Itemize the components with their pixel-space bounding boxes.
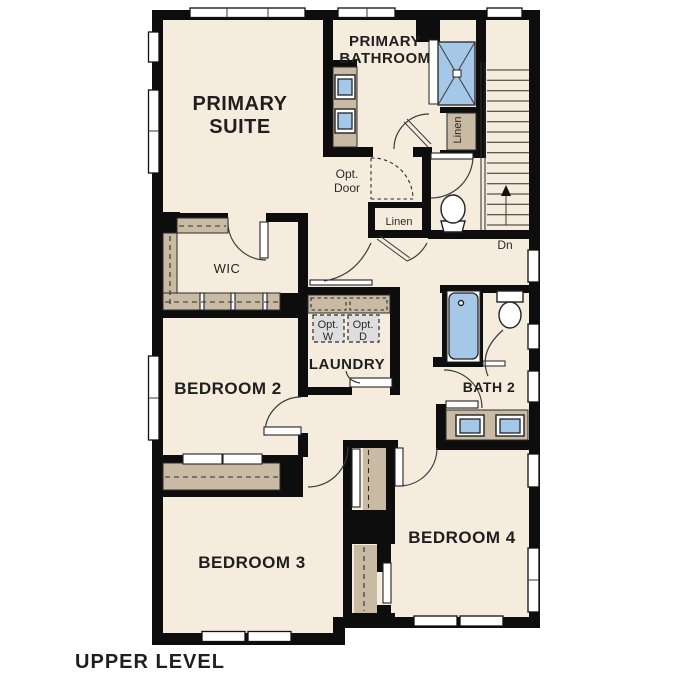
- stairs-down-label: Dn: [497, 238, 512, 252]
- half-wall: [483, 361, 505, 366]
- wic-label: WIC: [214, 261, 241, 276]
- window: [414, 616, 457, 626]
- page-title: UPPER LEVEL: [75, 651, 225, 673]
- window: [528, 454, 539, 487]
- laundry-label: LAUNDRY: [309, 356, 385, 373]
- opt-dryer-label: Opt.: [353, 319, 374, 331]
- window: [460, 616, 503, 626]
- bath2-label: BATH 2: [463, 379, 516, 395]
- primary-suite-label: PRIMARY: [193, 93, 288, 115]
- opt-washer-label: Opt.: [318, 319, 339, 331]
- window: [248, 632, 291, 642]
- bathtub: [447, 291, 480, 362]
- primary-suite-label: SUITE: [209, 116, 270, 138]
- opt-door-label: Door: [334, 181, 360, 195]
- floor-plan-page: PRIMARY SUITE PRIMARY BATHROOM WIC LAUND…: [0, 0, 687, 687]
- bedroom3-label: BEDROOM 3: [198, 553, 305, 572]
- bedroom4-label: BEDROOM 4: [408, 528, 516, 547]
- bedroom4-closet: [352, 448, 386, 510]
- primary-bathroom-label: PRIMARY: [349, 33, 421, 50]
- window: [149, 32, 160, 62]
- window: [528, 324, 539, 349]
- floor-plan-drawing: PRIMARY SUITE PRIMARY BATHROOM WIC LAUND…: [0, 0, 687, 687]
- opt-door-label: Opt.: [336, 167, 359, 181]
- primary-vanity: [330, 60, 357, 147]
- window: [487, 8, 522, 18]
- toilet: [441, 195, 465, 232]
- window: [202, 632, 245, 642]
- primary-bathroom-label: BATHROOM: [339, 50, 430, 67]
- window: [528, 250, 539, 282]
- linen-hall-label: Linen: [386, 216, 413, 228]
- window: [528, 371, 539, 402]
- toilet: [497, 291, 523, 328]
- opt-washer-label: W: [323, 331, 334, 343]
- bedroom2-label: BEDROOM 2: [174, 379, 281, 398]
- opt-dryer-label: D: [359, 331, 367, 343]
- window: [190, 8, 305, 18]
- bath2-vanity: [446, 410, 528, 440]
- linen-upper-label: Linen: [452, 117, 464, 144]
- shower: [438, 42, 475, 105]
